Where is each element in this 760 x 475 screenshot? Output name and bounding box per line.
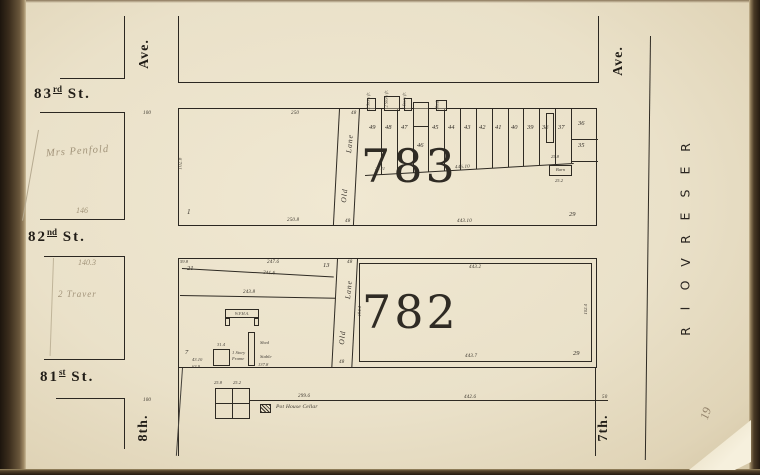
- page-bottom-edge: [0, 469, 760, 475]
- lot-number: 47: [401, 125, 408, 132]
- letter: S: [678, 190, 693, 198]
- lot-number: 43: [464, 125, 471, 132]
- measurement-barn: 25.2: [555, 179, 563, 184]
- building-footprint: [413, 102, 429, 127]
- street-ordinal: rd: [53, 84, 62, 94]
- street-label-83rd: 83rd St.: [34, 84, 91, 103]
- lot-number-13: 13: [323, 263, 330, 270]
- block-782-outline: 21 59.8 247.6 241.6 13 243.8 Lane Old 48…: [178, 258, 597, 368]
- lot-number: 39: [527, 125, 534, 132]
- building-note: 2 Story fr.: [385, 90, 389, 107]
- measurement-rear: 446.10: [455, 165, 470, 171]
- lot-divider: [539, 109, 540, 165]
- reservoir-letter: V: [674, 251, 696, 274]
- lot-divider: [444, 109, 445, 171]
- measurement-top: 247.6: [267, 260, 279, 265]
- lot-number: 41: [495, 125, 502, 132]
- letter: R: [678, 327, 693, 336]
- lot-number: 44: [448, 125, 455, 132]
- east-lot-outline: [359, 263, 592, 362]
- reservoir-letter: I: [674, 297, 696, 320]
- measurement-east-top: 443.2: [469, 265, 481, 270]
- stable-building-footprint: [248, 332, 255, 366]
- lot-divider: [523, 109, 524, 166]
- measurement-lot1-top: 250: [291, 111, 299, 116]
- barn-label: Barn: [556, 168, 565, 173]
- measurement-south-2: 442.6: [464, 395, 476, 400]
- lot-number: 42: [479, 125, 486, 132]
- u-building-label: W.F.H.A.: [235, 312, 249, 316]
- measurement-stable: 137.8: [258, 363, 268, 368]
- old-lane-label-upper: Lane: [343, 280, 354, 300]
- u-building-leg: [225, 318, 230, 326]
- frame-building-label-2: Frame: [232, 357, 244, 362]
- old-lane-east-line: [353, 109, 360, 226]
- mid-lot-line: [180, 295, 336, 299]
- avenue-7th-label-top: Ave.: [611, 35, 633, 87]
- lot-divider: [492, 109, 493, 168]
- page-top-edge: [26, 0, 749, 3]
- building-note: 2 Story fr.: [367, 92, 371, 109]
- frame-building-label-1: 1 Story: [232, 351, 245, 356]
- street-number: 81: [40, 369, 59, 385]
- street-label-81st: 81st St.: [40, 367, 94, 386]
- street-number: 82: [28, 229, 47, 245]
- avenue-7th-west-line-south: [595, 368, 596, 456]
- measurement-lot1-bottom: 250.8: [287, 218, 299, 223]
- lot-35-rear-line: [571, 161, 598, 162]
- barn-footprint: Barn: [549, 165, 572, 176]
- lane-width-bottom: 48: [345, 219, 350, 224]
- cellar-label: Pot House Cellar: [276, 405, 318, 411]
- building-note: Shed: [436, 101, 440, 110]
- street-suffix: St.: [68, 86, 91, 102]
- reservoir-letter: R: [674, 320, 696, 343]
- lot-number: 49: [369, 125, 376, 132]
- lot-divider: [460, 109, 461, 170]
- measurement-east-side: 102.4: [584, 304, 589, 314]
- street-number: 83: [34, 86, 53, 102]
- avenue-width-tick-south: 100: [143, 398, 151, 403]
- lot-number-21: 21: [187, 266, 194, 273]
- stable-label: Stable: [260, 355, 271, 360]
- lot-number-36: 36: [578, 121, 585, 128]
- avenue-width-tick-north: 100: [143, 111, 151, 116]
- lot-number-35: 35: [578, 143, 585, 150]
- lot-number: 45: [432, 125, 439, 132]
- lot-divider: [476, 109, 477, 169]
- letter: I: [678, 307, 693, 311]
- measurement-cellar-2: 25.2: [233, 381, 241, 386]
- reservoir-letter: R: [674, 136, 696, 159]
- lot-number-1: 1: [187, 209, 191, 216]
- street-suffix: St.: [71, 369, 94, 385]
- street-label-82nd: 82nd St.: [28, 227, 86, 246]
- measurement-lot7-1: 43.10: [192, 358, 202, 363]
- measurement-frame-width: 31.4: [217, 343, 225, 348]
- pencil-note-140-3: 140.3: [78, 258, 96, 267]
- measurement-cellar-1: 25.8: [214, 381, 222, 386]
- west-block-outline-south: [56, 398, 125, 449]
- west-block-outline-north: [60, 16, 125, 79]
- measurement-south-3: 50: [602, 395, 607, 400]
- reservoir-label: R E S E R V O I R: [674, 136, 696, 343]
- avenue-8th-label-top: Ave.: [137, 28, 159, 80]
- letter: E: [678, 213, 693, 221]
- measurement-diagonal: 241.6: [263, 271, 275, 277]
- lot-divider: [397, 109, 398, 174]
- lot-divider: [508, 109, 509, 167]
- measurement-lot21-corner: 59.8: [180, 260, 188, 265]
- reservoir-letter: E: [674, 205, 696, 228]
- lot-number: 40: [511, 125, 518, 132]
- building-note: 1 Story fr.: [403, 92, 407, 109]
- pencil-note-name: 2 Traver: [58, 289, 97, 299]
- reservoir-letter: E: [674, 159, 696, 182]
- avenue-7th-label-bottom: 7th.: [596, 406, 616, 450]
- measurement-east-bottom: 443.7: [465, 354, 477, 359]
- letter: V: [678, 258, 693, 267]
- page-right-edge: [749, 0, 760, 475]
- letter: R: [678, 235, 693, 244]
- old-lane-west-line: [331, 259, 338, 368]
- old-lane-label-lower: Old: [337, 330, 347, 345]
- reservoir-letter: S: [674, 182, 696, 205]
- lot-divider: [571, 109, 572, 163]
- shed-label: Shed: [260, 341, 269, 346]
- old-lane-label-upper: Lane: [344, 134, 355, 154]
- u-building-leg: [254, 318, 259, 326]
- avenue-8th-label-bottom: 8th.: [136, 406, 156, 450]
- lane-width-top: 48: [351, 111, 356, 116]
- lot-number-29: 29: [569, 212, 576, 219]
- letter: R: [678, 143, 693, 152]
- pencil-note-146: 146: [76, 206, 88, 215]
- lot-36-35-divider: [571, 139, 598, 140]
- plat-map-page: 83rd St. 82nd St. 81st St. Ave. 8th. Ave…: [0, 0, 760, 475]
- west-block-outline-83-82: [40, 112, 125, 220]
- measurement-lot7-2: 63.9: [192, 365, 200, 370]
- cellar-hatch: [260, 404, 271, 413]
- lot-number: 37: [558, 125, 565, 132]
- street-ordinal: nd: [47, 227, 57, 237]
- lot-number: 48: [385, 125, 392, 132]
- measurement-lot1-west: 102.8: [179, 157, 184, 169]
- west-block-outline-82-81: [44, 256, 125, 360]
- building-footprint: [546, 113, 554, 143]
- book-binding-edge: [0, 0, 26, 475]
- reservoir-letter: O: [674, 274, 696, 297]
- building-inner-line: [216, 403, 249, 404]
- lot-number: 46: [417, 143, 424, 150]
- lane-width-bottom: 48: [339, 360, 344, 365]
- lane-width-top: 48: [347, 260, 352, 265]
- north-block-outline: [178, 16, 599, 83]
- old-lane-label-lower: Old: [339, 188, 349, 203]
- old-lane-west-line: [333, 109, 340, 226]
- reservoir-letter: R: [674, 228, 696, 251]
- letter: O: [678, 281, 693, 291]
- frame-building-footprint: [213, 349, 230, 366]
- corner-building-footprint: [215, 388, 250, 419]
- lot-21-diagonal-line: [182, 268, 334, 277]
- measurement-south-1: 299.6: [298, 394, 310, 399]
- street-ordinal: st: [59, 367, 66, 377]
- u-building-footprint: W.F.H.A.: [225, 309, 259, 318]
- letter: E: [678, 167, 693, 175]
- lot-number-7: 7: [185, 350, 188, 357]
- street-81-south-line: [250, 400, 608, 401]
- measurement-south: 443.10: [457, 219, 472, 224]
- street-suffix: St.: [63, 229, 86, 245]
- measurement-barn-adjacent: 25.8: [551, 155, 559, 160]
- measurement-mid: 243.8: [243, 290, 255, 295]
- measurement-rear-tick: 25.11: [375, 167, 385, 172]
- lot-number-29: 29: [573, 351, 580, 358]
- block-783-outline: Lane Old 48 48 1 250 250.8 102.8 783 25.…: [178, 108, 597, 226]
